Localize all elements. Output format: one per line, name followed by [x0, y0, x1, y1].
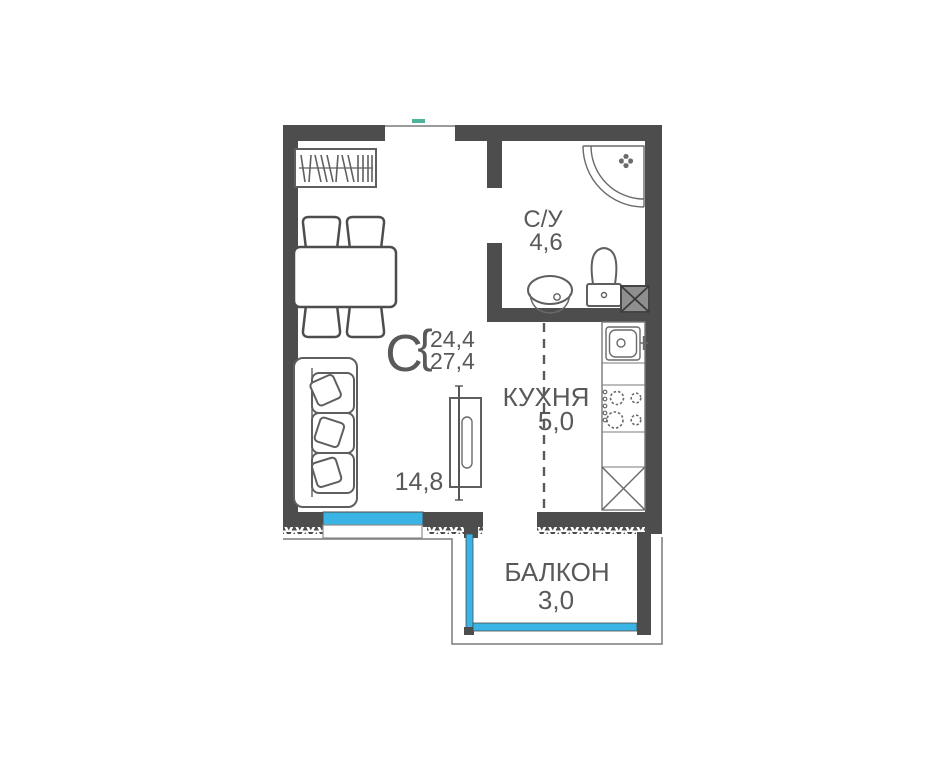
- ventilation-shaft-icon: [621, 286, 649, 312]
- balcony-glazing-left: [466, 534, 473, 630]
- living-area: 14,8: [395, 468, 444, 496]
- chair: [303, 217, 340, 249]
- entrance-marker: [412, 119, 425, 123]
- dining-table: [294, 247, 396, 307]
- chair: [347, 305, 384, 337]
- balcony-label: БАЛКОН: [504, 557, 609, 587]
- balcony-glazing-corner: [464, 627, 474, 635]
- unit-area-total: 27,4: [430, 348, 475, 374]
- window-glass: [323, 512, 423, 525]
- balcony-area: 3,0: [538, 585, 574, 615]
- toilet: [587, 248, 621, 306]
- bathroom-area: 4,6: [529, 229, 562, 256]
- floor-plan: С { 24,4 27,4 С/У 4,6 КУХНЯ 5,0 14,8 БАЛ…: [0, 0, 945, 777]
- wardrobe-hanger: [295, 149, 376, 187]
- balcony-glazing-bottom: [473, 623, 637, 631]
- bathroom-sink: [528, 276, 572, 313]
- shower-head-icon: [619, 154, 633, 168]
- tv-stand: [450, 386, 481, 500]
- living-room-window: [323, 512, 423, 538]
- dining-set: [294, 217, 396, 337]
- sofa: [294, 358, 357, 507]
- window-sill: [323, 525, 422, 538]
- corner-shower: [583, 146, 644, 207]
- floor-plan-page: С { 24,4 27,4 С/У 4,6 КУХНЯ 5,0 14,8 БАЛ…: [0, 0, 945, 777]
- kitchen-area: 5,0: [538, 406, 574, 436]
- chair: [303, 305, 340, 337]
- chair: [347, 217, 384, 249]
